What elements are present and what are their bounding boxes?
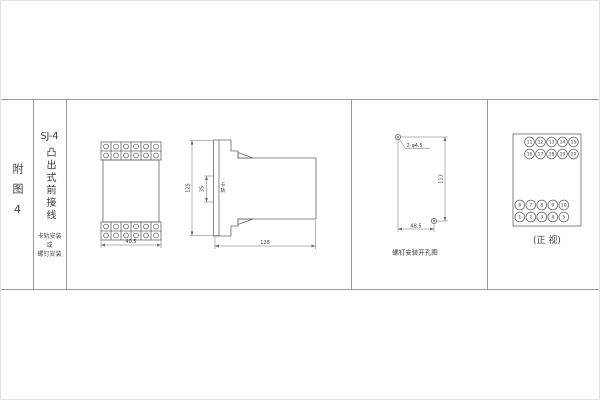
screw-circle (154, 144, 159, 149)
screw-circle (104, 224, 109, 229)
length-dim-label: 128 (260, 240, 270, 246)
table-rule-bottom (1, 289, 600, 290)
terminal-number: 2 (529, 215, 532, 221)
width-dim-label: 40.5 (125, 239, 136, 245)
hole-center (397, 136, 399, 138)
terminal-number: 20 (571, 152, 577, 158)
relay-body-outline (103, 160, 159, 222)
table-rule-v2 (66, 99, 67, 289)
mounting-hole-top (395, 134, 400, 139)
screw-circle (144, 233, 149, 238)
length-dimension: 128 (215, 220, 316, 249)
mounting-note-line: 螺钉安装 (37, 250, 61, 259)
screw-circle (104, 153, 109, 158)
flange-plate (214, 140, 220, 236)
hole-diagram-caption: 螺钉安装开孔图 (392, 248, 438, 257)
mounting-hole-bottom (431, 218, 436, 223)
front-view-drawing: 40.5 (91, 131, 171, 256)
screw-circle (154, 233, 159, 238)
mounting-note-line: 卡轨安装 (37, 232, 61, 241)
horizontal-hole-dimension: 48.5 (398, 140, 434, 232)
terminal-number: 6 (518, 203, 521, 209)
housing-profile (219, 140, 316, 236)
figure-index-label: 附图4 (9, 163, 25, 225)
screw-circle (134, 224, 139, 229)
terminal-number: 15 (571, 140, 577, 146)
terminal-group-bottom: 67891012345 (515, 200, 569, 222)
screw-circle (114, 153, 119, 158)
screw-circle (134, 233, 139, 238)
vertical-hole-dimension: 113 (401, 137, 448, 221)
screw-circle (144, 153, 149, 158)
rail-label: 卡轨 (220, 181, 226, 194)
terminal-number: 4 (551, 215, 554, 221)
hole-size-label: 2-φ4.5 (407, 143, 423, 149)
top-rib-triangle (238, 153, 253, 159)
terminal-number: 10 (561, 203, 567, 209)
terminal-number: 8 (540, 203, 543, 209)
screw-circle (124, 233, 129, 238)
terminal-number: 5 (562, 215, 565, 221)
terminal-layout-view: 11121314151617181920 67891012345 (正 视) (487, 126, 600, 251)
screw-circle (114, 233, 119, 238)
screw-circle (154, 224, 159, 229)
terminal-view-caption: (正 视) (533, 234, 561, 246)
terminal-number: 17 (538, 152, 544, 158)
index-column: 附图4 (1, 99, 33, 289)
screw-circle (104, 144, 109, 149)
screw-circle (124, 144, 129, 149)
mounting-note-line: 或 (37, 241, 61, 250)
hole-center (433, 220, 435, 222)
terminal-number: 19 (560, 152, 566, 158)
screw-circle (114, 224, 119, 229)
wiring-type-title: 凸出式前接线 (42, 147, 57, 222)
rail-slot-dimension: 35 卡轨 (200, 176, 226, 202)
table-rule-top (1, 99, 600, 100)
vertical-dim-label: 113 (439, 174, 445, 184)
terminal-number: 7 (529, 203, 532, 209)
terminal-number: 18 (549, 152, 555, 158)
terminal-number: 12 (538, 140, 544, 146)
horizontal-dim-label: 48.5 (410, 224, 421, 230)
terminal-number: 13 (549, 140, 555, 146)
terminal-group-top: 11121314151617181920 (525, 137, 579, 159)
screw-circle (114, 144, 119, 149)
drawing-sheet: 附图4 SJ-4 凸出式前接线 卡轨安装 或 螺钉安装 40.5 125 (0, 0, 600, 400)
terminal-number: 3 (540, 215, 543, 221)
mounting-hole-diagram: 2-φ4.5 113 48.5 螺钉安装开孔图 (351, 126, 487, 266)
screw-circle (154, 153, 159, 158)
height-dim-label: 125 (186, 183, 192, 193)
screw-circle (124, 224, 129, 229)
screw-circle (144, 224, 149, 229)
screw-circle (144, 144, 149, 149)
bottom-rib-triangle (238, 219, 253, 225)
rail-dim-label: 35 (200, 186, 206, 192)
terminal-number: 14 (560, 140, 566, 146)
terminal-panel-outline (513, 134, 581, 226)
screw-circle (104, 233, 109, 238)
terminal-number: 1 (518, 215, 521, 221)
terminal-number: 9 (551, 203, 554, 209)
mounting-note: 卡轨安装 或 螺钉安装 (37, 232, 61, 259)
front-view-terminal-blocks (101, 142, 161, 240)
screw-circle (124, 153, 129, 158)
model-label: SJ-4 (41, 131, 59, 142)
terminal-number: 11 (527, 140, 533, 146)
title-column: SJ-4 凸出式前接线 卡轨安装 或 螺钉安装 (33, 99, 66, 289)
hole-callout: 2-φ4.5 (400, 139, 431, 149)
screw-circle (134, 153, 139, 158)
terminal-number: 16 (527, 152, 533, 158)
side-view-drawing: 125 35 卡轨 128 (181, 129, 341, 256)
screw-circle (134, 144, 139, 149)
